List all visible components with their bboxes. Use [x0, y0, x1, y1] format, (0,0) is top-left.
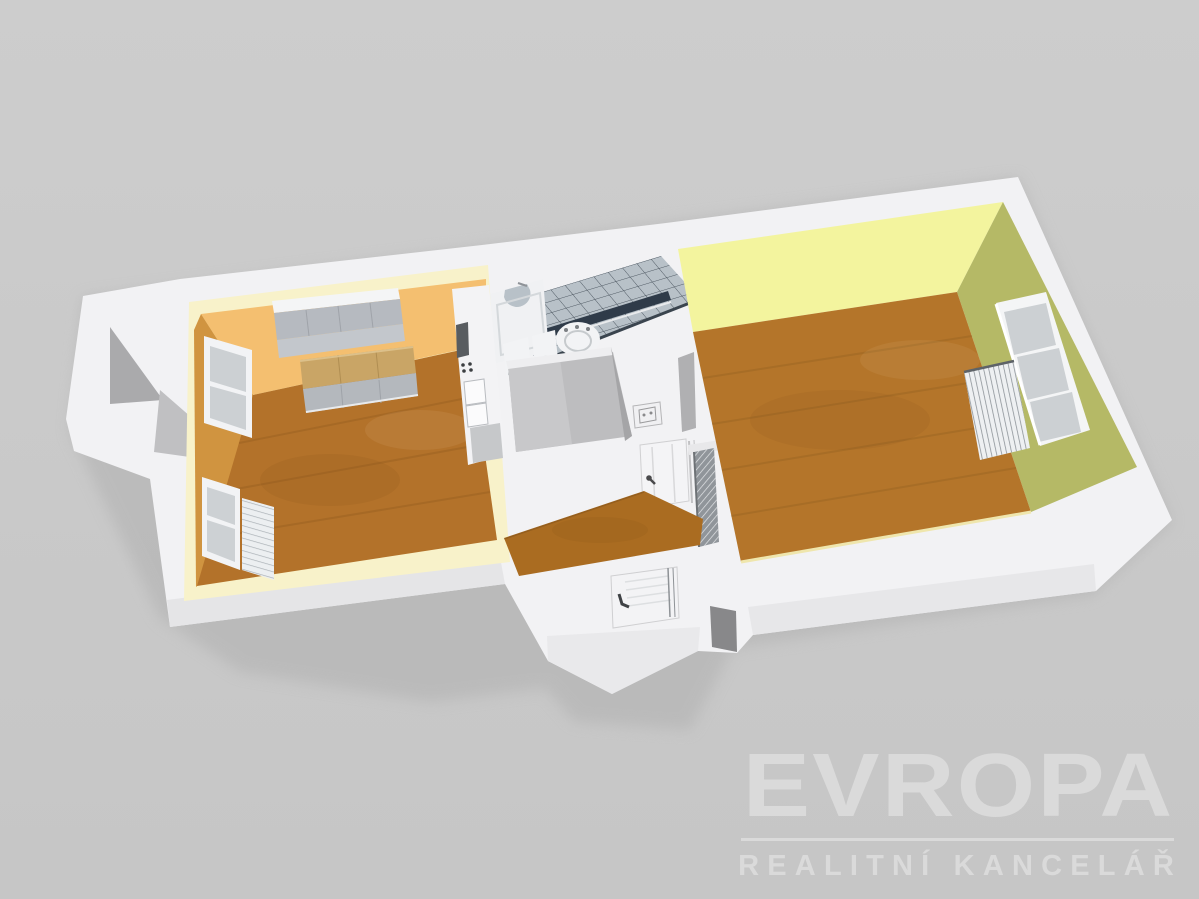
brand-tagline: REALITNÍ KANCELÁŘ [738, 850, 1182, 883]
watermark: EVROPA REALITNÍ KANCELÁŘ [738, 745, 1174, 883]
brand-divider [741, 838, 1174, 841]
floor-plan-screenshot: EVROPA REALITNÍ KANCELÁŘ [0, 0, 1199, 899]
floor-texture [552, 517, 648, 543]
floor-texture [365, 410, 475, 450]
front-door [611, 567, 679, 628]
kitchen-window-2 [202, 477, 240, 570]
kitchen-room [184, 265, 510, 601]
kitchen-radiator [242, 498, 274, 580]
floor-texture [750, 390, 930, 450]
floor-texture [860, 340, 980, 380]
electric-panel [633, 402, 662, 428]
oven-icon [456, 322, 469, 358]
floor-texture [260, 454, 400, 506]
vestibule-dark-end-face [710, 606, 737, 652]
entrance-vestibule [611, 567, 679, 628]
hall-closet [506, 347, 632, 452]
brand-wordmark: EVROPA [742, 745, 1174, 828]
kitchen-window [204, 336, 252, 438]
